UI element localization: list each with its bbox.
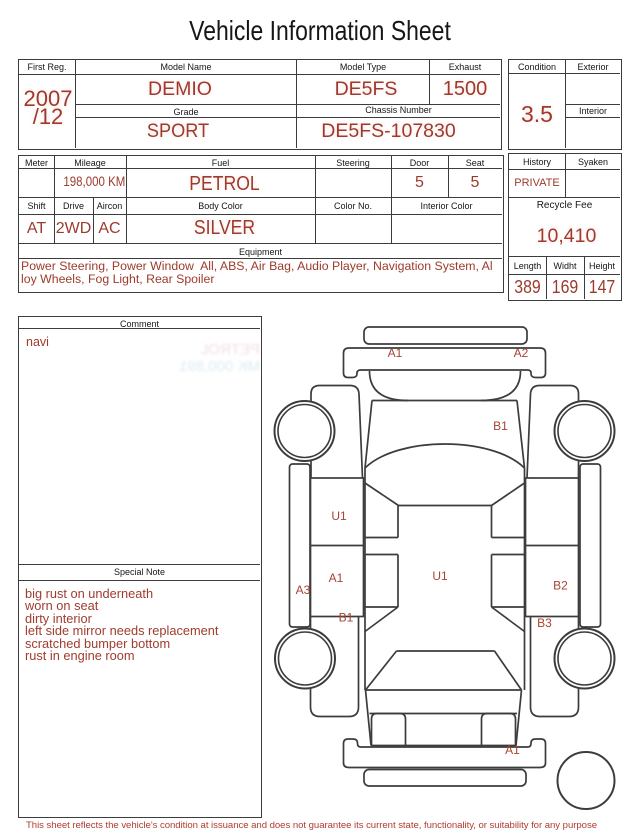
svg-text:B1: B1	[339, 611, 354, 625]
svg-text:A1: A1	[505, 743, 520, 757]
svg-text:B3: B3	[537, 616, 552, 630]
svg-text:U1: U1	[331, 509, 347, 523]
svg-text:A1: A1	[388, 346, 403, 360]
svg-text:A3: A3	[296, 583, 311, 597]
svg-text:B1: B1	[493, 419, 508, 433]
svg-text:B2: B2	[553, 579, 568, 593]
svg-text:A1: A1	[329, 571, 344, 585]
svg-text:U1: U1	[432, 569, 448, 583]
svg-text:A2: A2	[514, 346, 529, 360]
